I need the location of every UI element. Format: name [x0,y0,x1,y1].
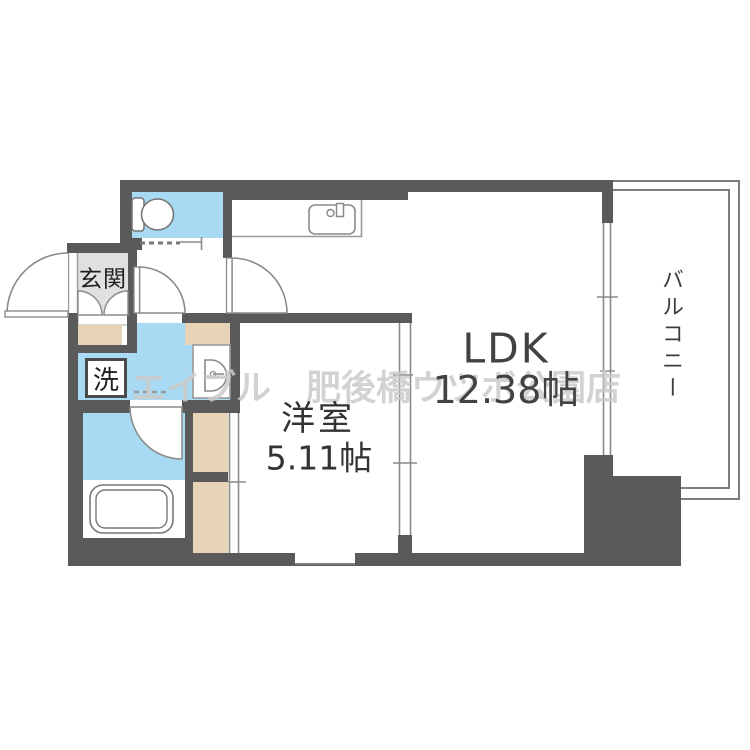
toilet-folding-door [140,237,202,250]
closet-lower [193,482,228,553]
bedroom-bottom-window [295,553,355,564]
entrance-label: 玄関 [79,269,127,292]
washbasin-icon [193,345,230,398]
washroom-door-swing-arc [134,267,185,313]
front-door-swing-arc [5,253,68,317]
closet-upper [193,413,228,472]
bedroom-sliding-door [393,323,417,535]
closet-divider-stub [185,472,228,482]
sliding-door-bottom-stub [398,535,412,566]
toilet-right-wall [223,190,232,258]
top-wall [120,180,613,192]
middle-wall [182,313,412,323]
kitchen-sink-icon [232,200,362,237]
floorplan-canvas: 玄関 洗 LDK 12.38帖 洋室 5.11帖 バルコニー エイブル 肥後橋ウ… [0,0,750,750]
left-wall-mid [68,313,78,410]
shoe-cabinet-stub [78,345,135,353]
bathtub-icon [90,485,173,533]
ldk-window [597,223,618,455]
washroom-right-wall [230,313,240,413]
ldk-size-label: 12.38帖 [433,371,580,409]
front-door-opening [69,253,78,313]
top-wall-thick [223,192,408,200]
washroom-bottom-wall-right [182,400,240,413]
washroom-floor-center [135,323,185,400]
closet-sliding-door [228,413,246,553]
ldk-window-top-stub [602,192,613,223]
shoe-cabinet [78,325,122,345]
balcony-label: バルコニー [659,268,681,403]
entrance-step [78,315,128,325]
entrance-top-wall [67,243,137,253]
storage-upper [185,323,230,345]
bedroom-label: 洋室 [281,402,355,436]
ldk-door-swing-arc [227,258,288,313]
laundry-label: 洗 [93,360,119,397]
corner-block-outer [613,476,681,566]
bedroom-size-label: 5.11帖 [266,442,372,475]
laundry-box: 洗 [85,358,127,398]
corner-block-inner [584,455,613,566]
ldk-label: LDK [462,329,549,370]
toilet-icon [132,198,174,231]
bathroom-right-wall [185,413,193,553]
